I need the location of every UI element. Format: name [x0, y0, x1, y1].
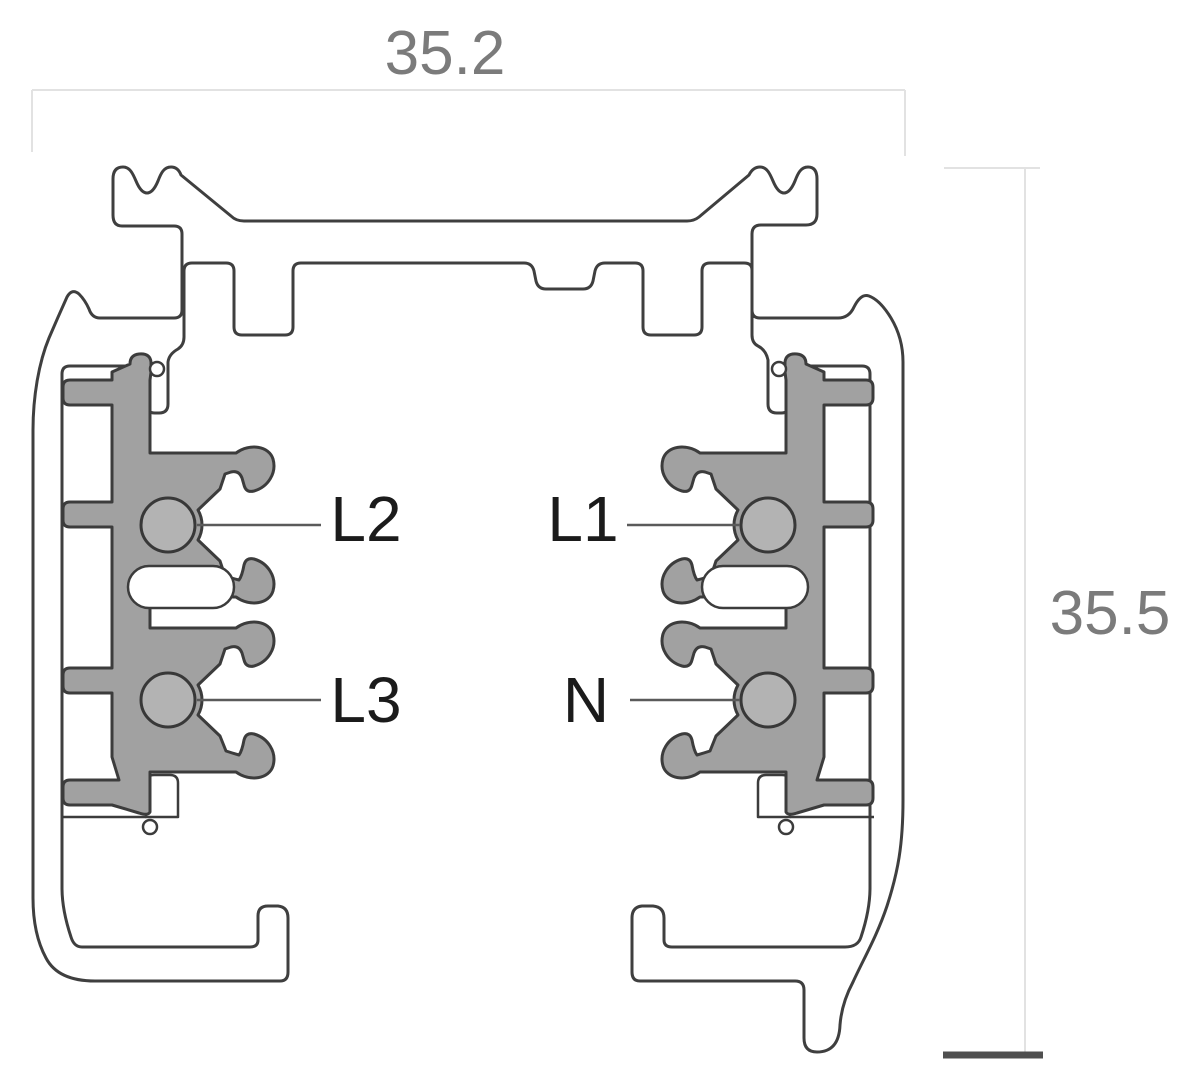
- conductor-n: [741, 673, 795, 727]
- conductor-l3: [141, 673, 195, 727]
- conductor-label-l1: L1: [547, 483, 618, 555]
- conductor-label-l2: L2: [330, 483, 401, 555]
- height-dimension: 35.5: [943, 168, 1170, 1055]
- carrier-cutout-left: [128, 566, 234, 608]
- conductor-l1: [741, 498, 795, 552]
- conductor-label-n: N: [563, 664, 609, 736]
- keyhole-bottom-right: [779, 820, 793, 834]
- diagram-canvas: 35.2 35.5 L2 L1 L3 N: [0, 0, 1200, 1076]
- keyhole-top-left: [150, 362, 164, 376]
- width-dimension-value: 35.2: [385, 19, 506, 88]
- carrier-cutout-right: [702, 566, 808, 608]
- height-dimension-value: 35.5: [1050, 579, 1171, 648]
- width-dimension: 35.2: [32, 19, 905, 156]
- keyhole-bottom-left: [143, 820, 157, 834]
- conductor-l2: [141, 498, 195, 552]
- track-profile-diagram: 35.2 35.5 L2 L1 L3 N: [0, 0, 1200, 1076]
- conductor-label-l3: L3: [330, 664, 401, 736]
- keyhole-top-right: [772, 362, 786, 376]
- track-shell-outline: [33, 167, 903, 1052]
